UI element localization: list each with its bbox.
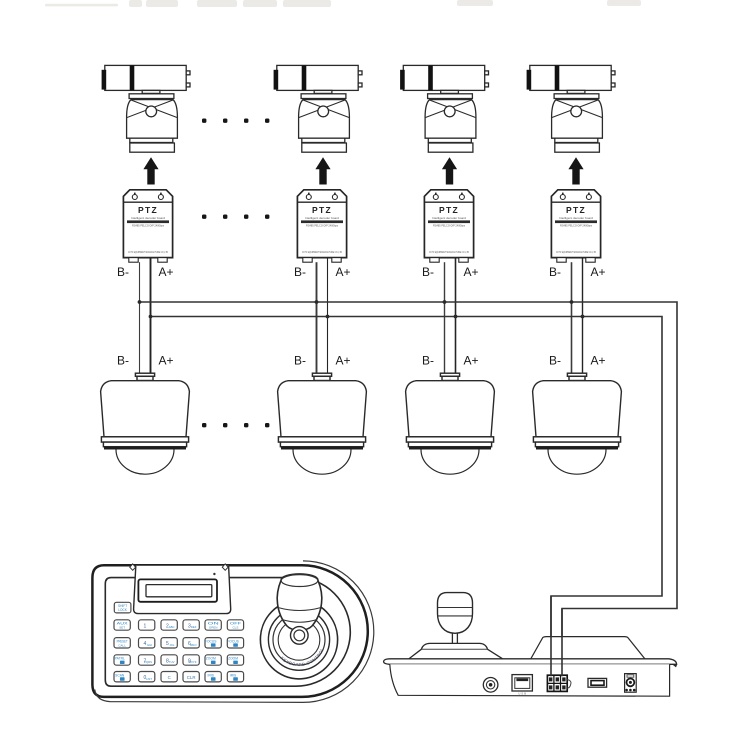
svg-text:ZOOM: ZOOM (206, 657, 216, 661)
svg-text:A+: A+ (464, 354, 479, 368)
svg-text:MNO: MNO (190, 643, 197, 647)
svg-text:WXYZ: WXYZ (188, 660, 196, 664)
svg-text:SCAN: SCAN (115, 673, 125, 677)
svg-text:DEF: DEF (191, 625, 197, 629)
svg-text:CLS: CLS (233, 626, 239, 630)
svg-text:OPEN: OPEN (209, 626, 218, 630)
svg-text:JKL: JKL (170, 643, 175, 647)
svg-text:C: C (168, 675, 171, 680)
svg-text:PATRL: PATRL (115, 657, 125, 661)
svg-text:A+: A+ (336, 265, 351, 279)
svg-text:B-: B- (549, 354, 561, 368)
svg-text:B-: B- (117, 354, 129, 368)
svg-text:FOCUS: FOCUS (205, 640, 217, 644)
svg-text:A+: A+ (336, 354, 351, 368)
svg-text:A+: A+ (159, 354, 174, 368)
svg-text:SET: SET (119, 626, 125, 630)
svg-text:A+: A+ (159, 265, 174, 279)
svg-text:IRIS: IRIS (208, 673, 215, 677)
svg-text:5: 5 (166, 641, 169, 647)
svg-text:B-: B- (422, 265, 434, 279)
svg-text:CLR: CLR (187, 675, 196, 680)
svg-text:1: 1 (144, 623, 147, 629)
svg-text:ZOOM: ZOOM (228, 657, 238, 661)
svg-text:B-: B- (294, 354, 306, 368)
svg-text:B-: B- (117, 265, 129, 279)
svg-text:GHI: GHI (147, 643, 152, 647)
svg-text:CALL: CALL (118, 643, 126, 647)
svg-text:B-: B- (422, 354, 434, 368)
svg-text:A+: A+ (591, 265, 606, 279)
svg-text:B-: B- (549, 265, 561, 279)
svg-text:ABC: ABC (169, 625, 175, 629)
svg-text:LOCK: LOCK (118, 608, 128, 612)
svg-text:B-: B- (294, 265, 306, 279)
svg-text:A+: A+ (591, 354, 606, 368)
svg-text:PQRS: PQRS (144, 660, 152, 664)
svg-text:A+: A+ (464, 265, 479, 279)
svg-text:U S B: U S B (518, 692, 526, 696)
svg-text:IRIS: IRIS (230, 673, 237, 677)
svg-text:LIST: LIST (146, 677, 152, 681)
svg-text:FOCUS: FOCUS (227, 640, 239, 644)
svg-text:TUV: TUV (169, 660, 175, 664)
